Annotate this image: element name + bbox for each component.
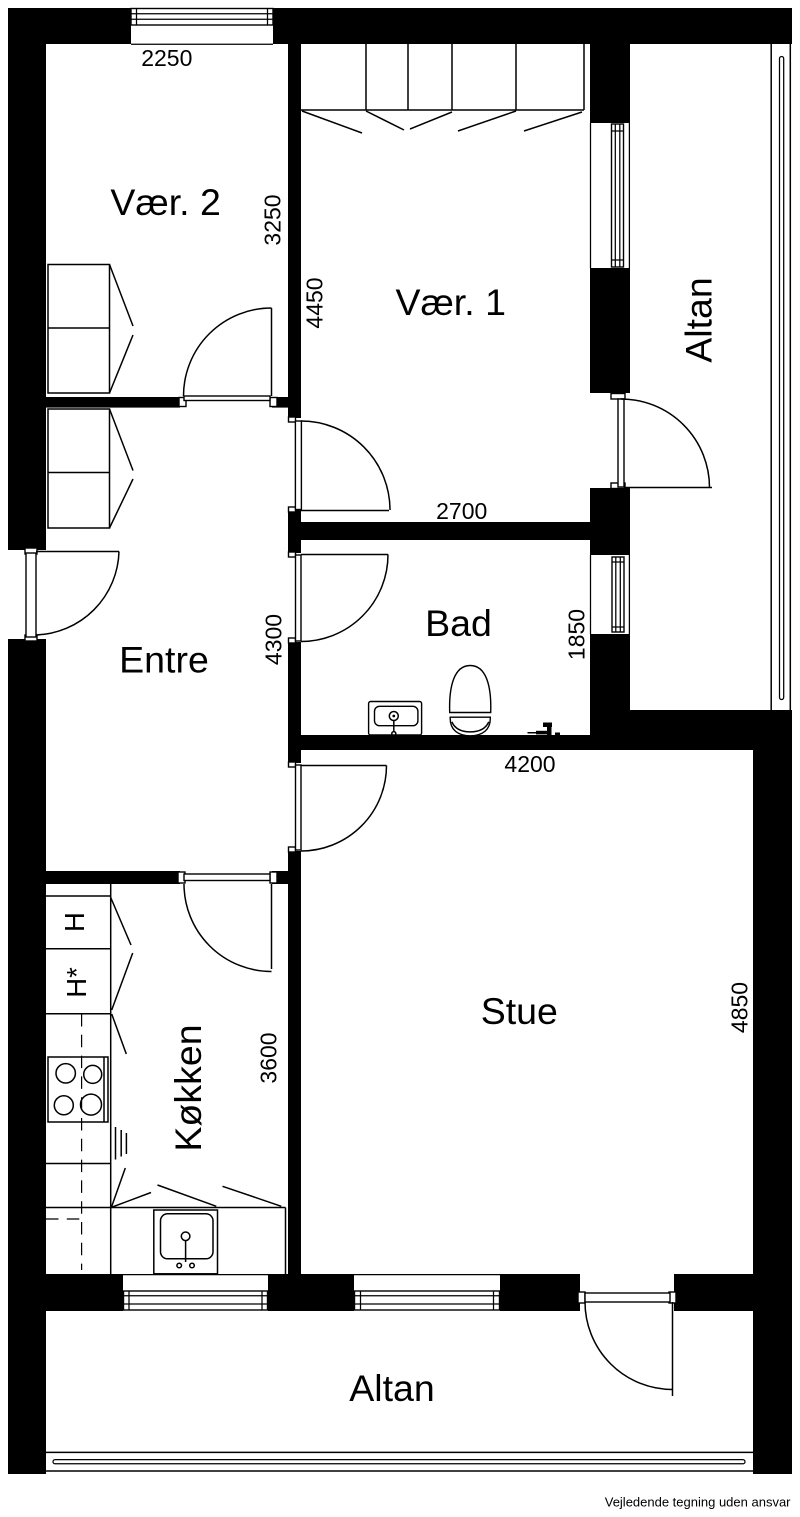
svg-text:4450: 4450 — [302, 277, 328, 328]
svg-text:Entre: Entre — [119, 638, 209, 680]
svg-text:H*: H* — [61, 967, 92, 998]
svg-text:Vær. 1: Vær. 1 — [395, 281, 505, 323]
svg-text:Altan: Altan — [349, 1367, 434, 1409]
svg-text:Vejledende tegning uden ansvar: Vejledende tegning uden ansvar — [605, 1494, 791, 1509]
svg-text:Vær. 2: Vær. 2 — [110, 181, 220, 223]
svg-text:1850: 1850 — [563, 609, 589, 660]
svg-text:H: H — [59, 912, 90, 932]
svg-text:3250: 3250 — [260, 194, 286, 245]
svg-text:Bad: Bad — [425, 602, 492, 644]
svg-text:4300: 4300 — [261, 614, 287, 665]
svg-text:Køkken: Køkken — [167, 1024, 209, 1151]
svg-text:3600: 3600 — [256, 1032, 282, 1083]
svg-text:4200: 4200 — [504, 751, 555, 777]
svg-text:Stue: Stue — [481, 990, 558, 1032]
svg-text:2700: 2700 — [436, 498, 487, 524]
svg-text:4850: 4850 — [726, 982, 752, 1033]
svg-text:Altan: Altan — [678, 277, 720, 362]
svg-text:2250: 2250 — [141, 45, 192, 71]
